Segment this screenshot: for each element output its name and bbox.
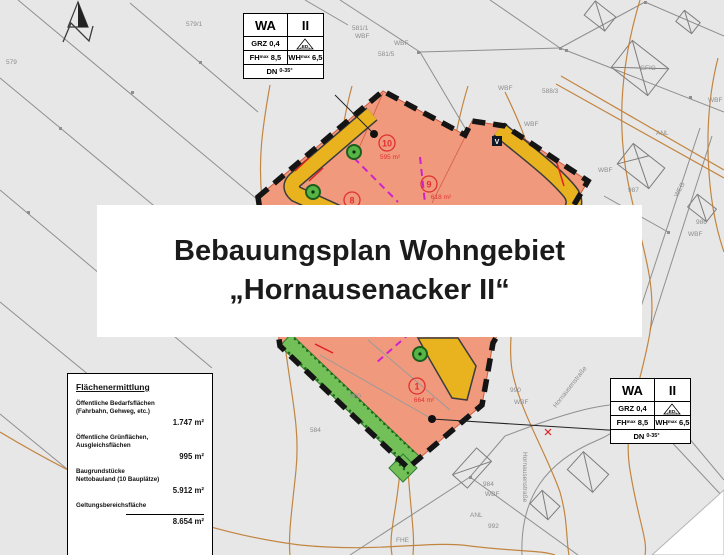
parcel-label: 584 [310,427,321,434]
roof-type-icon: ED [288,37,323,50]
plan-title-plate: Bebauungsplan Wohngebiet „Hornausenacker… [97,205,642,337]
wh-max: WHmax 6,5 [655,416,690,429]
area-item: Öffentliche Bedarfsflächen (Fahrbahn, Ge… [76,400,204,427]
fh-max: FHmax 8,5 [244,51,288,64]
parcel-label: 992 [488,523,499,530]
parcel-label: WBF [394,40,408,47]
svg-text:618 m²: 618 m² [431,194,452,201]
tree-icon [413,347,427,361]
zoning-legend-bottom: WA II GRZ 0,4 ED FHmax 8,5 WHmax 6,5 DN0… [610,378,691,444]
parcel-label: WBF [708,97,722,104]
parcel-label: WBF [598,167,612,174]
dn-value: DN0-35° [611,430,682,443]
svg-text:ED: ED [302,44,309,49]
zoning-use: WA [611,379,655,401]
parcel-label: 579 [6,59,17,66]
bebauungsplan-canvas: V 10 595 m² 9 618 m² 8 1 664 m² 579 579/… [0,0,724,555]
parcel-label: 579/1 [186,21,203,28]
parcel-label: WBF [485,491,499,498]
grz-value: GRZ 0,4 [244,37,288,50]
parcel-label: ANL [656,130,669,137]
svg-text:ED: ED [669,409,676,414]
parcel-label: 588/3 [542,88,559,95]
parcel-label: GFIG [640,65,656,72]
parcel-label: WBF [355,33,369,40]
tree-icon [306,185,320,199]
svg-text:1: 1 [414,382,419,392]
parcel-label: 581/5 [378,51,395,58]
roof-type-icon: ED [655,402,690,415]
parcel-label: ANL [470,512,483,519]
plan-title-line2: „Hornausenacker II“ [229,271,509,310]
parcel-label: 987 [628,187,639,194]
street-label: Hornausenstraße [521,452,528,503]
sum-divider [126,514,204,515]
parcel-label: WBF [514,399,528,406]
parcel-label: 986 [696,219,707,226]
v-access-marker: V [492,136,502,146]
area-item-total: Geltungsbereichsfläche 8.654 m² [76,502,204,526]
svg-text:664 m²: 664 m² [414,397,435,404]
zoning-storeys: II [288,14,323,36]
plan-title-line1: Bebauungsplan Wohngebiet [174,232,565,271]
svg-text:10: 10 [382,139,392,149]
svg-text:595 m²: 595 m² [380,154,401,161]
svg-text:9: 9 [426,180,431,190]
parcel-label: WBF [498,85,512,92]
fh-max: FHmax 8,5 [611,416,655,429]
svg-text:8: 8 [349,196,354,206]
tree-icon [347,145,361,159]
parcel-label: 990 [510,387,521,394]
wh-max: WHmax 6,5 [288,51,323,64]
parcel-label: WBF [688,231,702,238]
parcel-label: 984 [483,481,494,488]
dn-value: DN0-35° [244,65,315,78]
area-item: Öffentliche Grünflächen, Ausgleichsfläch… [76,434,204,461]
area-calculation-box: Flächenermittlung Öffentliche Bedarfsflä… [67,373,213,555]
svg-text:V: V [495,139,500,146]
area-item: Baugrundstücke Nettobauland (10 Bauplätz… [76,468,204,495]
parcel-label: 581/1 [352,25,369,32]
zoning-legend-top: WA II GRZ 0,4 ED FHmax 8,5 WHmax 6,5 DN0… [243,13,324,79]
area-calculation-title: Flächenermittlung [76,382,204,392]
parcel-label: WBF [524,121,538,128]
zoning-use: WA [244,14,288,36]
grz-value: GRZ 0,4 [611,402,655,415]
parcel-label: 590 [350,393,361,400]
parcel-label: FHE [396,537,410,544]
zoning-storeys: II [655,379,690,401]
